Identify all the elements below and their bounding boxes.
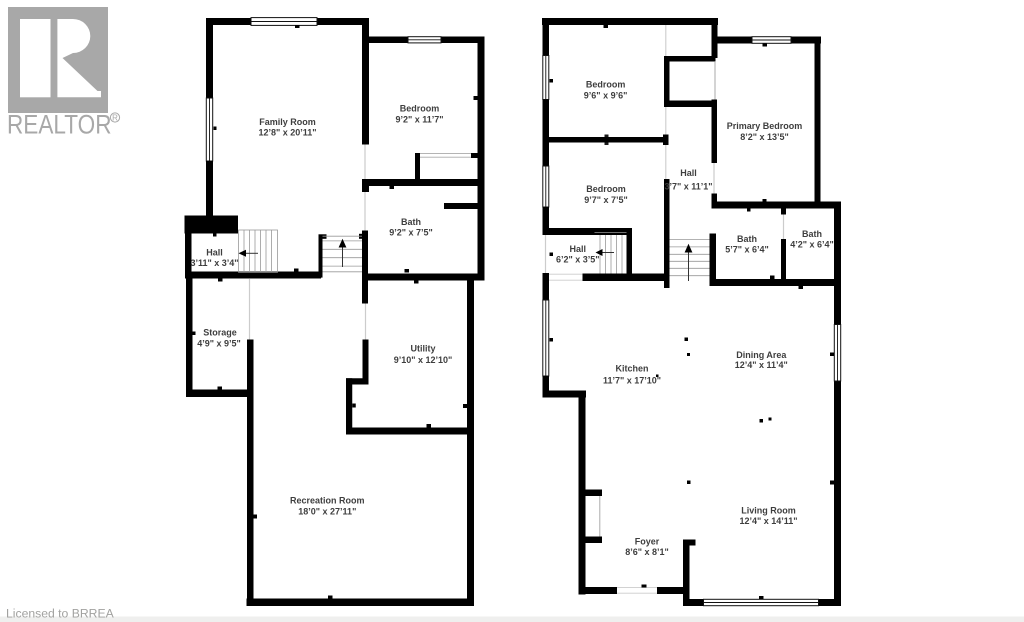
svg-text:Bath: Bath [737, 234, 757, 244]
svg-text:Foyer: Foyer [635, 537, 660, 547]
svg-text:R: R [112, 113, 118, 122]
svg-text:Bedroom: Bedroom [586, 184, 626, 194]
svg-text:Hall: Hall [570, 244, 587, 254]
svg-text:3’7" x 11’1": 3’7" x 11’1" [664, 182, 712, 192]
svg-text:Bedroom: Bedroom [586, 80, 626, 90]
svg-text:9’2" x 7’5": 9’2" x 7’5" [389, 228, 433, 238]
svg-text:Hall: Hall [680, 168, 697, 178]
svg-text:12’4" x 11’4": 12’4" x 11’4" [735, 360, 788, 370]
svg-text:Kitchen: Kitchen [615, 364, 648, 374]
svg-text:5’7" x 6’4": 5’7" x 6’4" [725, 245, 769, 255]
svg-text:8’6" x 8’1": 8’6" x 8’1" [625, 547, 669, 557]
svg-text:9’2" x 11’7": 9’2" x 11’7" [395, 115, 443, 125]
svg-text:4’2" x 6’4": 4’2" x 6’4" [790, 240, 834, 250]
svg-text:Utility: Utility [410, 344, 435, 354]
svg-text:6’2" x 3’5": 6’2" x 3’5" [556, 254, 600, 264]
svg-text:Storage: Storage [203, 328, 237, 338]
svg-text:Bath: Bath [401, 217, 421, 227]
svg-text:Bath: Bath [802, 229, 822, 239]
svg-text:3’11" x 3’4": 3’11" x 3’4" [190, 258, 238, 268]
svg-text:Bedroom: Bedroom [400, 104, 440, 114]
svg-text:12’4" x 14’11": 12’4" x 14’11" [739, 516, 797, 526]
svg-text:Licensed to BRREA: Licensed to BRREA [6, 607, 115, 621]
svg-text:REALTOR: REALTOR [7, 110, 112, 140]
svg-text:Hall: Hall [206, 248, 223, 258]
svg-text:Living Room: Living Room [741, 506, 796, 516]
svg-text:11’7" x 17’10": 11’7" x 17’10" [603, 376, 661, 386]
svg-text:4’9" x 9’5": 4’9" x 9’5" [197, 339, 241, 349]
svg-text:12’8" x 20’11": 12’8" x 20’11" [258, 128, 316, 138]
svg-text:Recreation Room: Recreation Room [290, 496, 365, 506]
svg-text:Primary Bedroom: Primary Bedroom [727, 121, 803, 131]
svg-text:9’7" x 7’5": 9’7" x 7’5" [584, 195, 628, 205]
svg-text:Family Room: Family Room [259, 117, 316, 127]
svg-text:9’6" x 9’6": 9’6" x 9’6" [584, 90, 628, 100]
svg-text:18’0" x 27’11": 18’0" x 27’11" [298, 507, 356, 517]
svg-text:8’2" x 13’5": 8’2" x 13’5" [740, 132, 789, 142]
svg-text:Dining Area: Dining Area [736, 350, 787, 360]
svg-text:9’10" x 12’10": 9’10" x 12’10" [394, 355, 453, 365]
